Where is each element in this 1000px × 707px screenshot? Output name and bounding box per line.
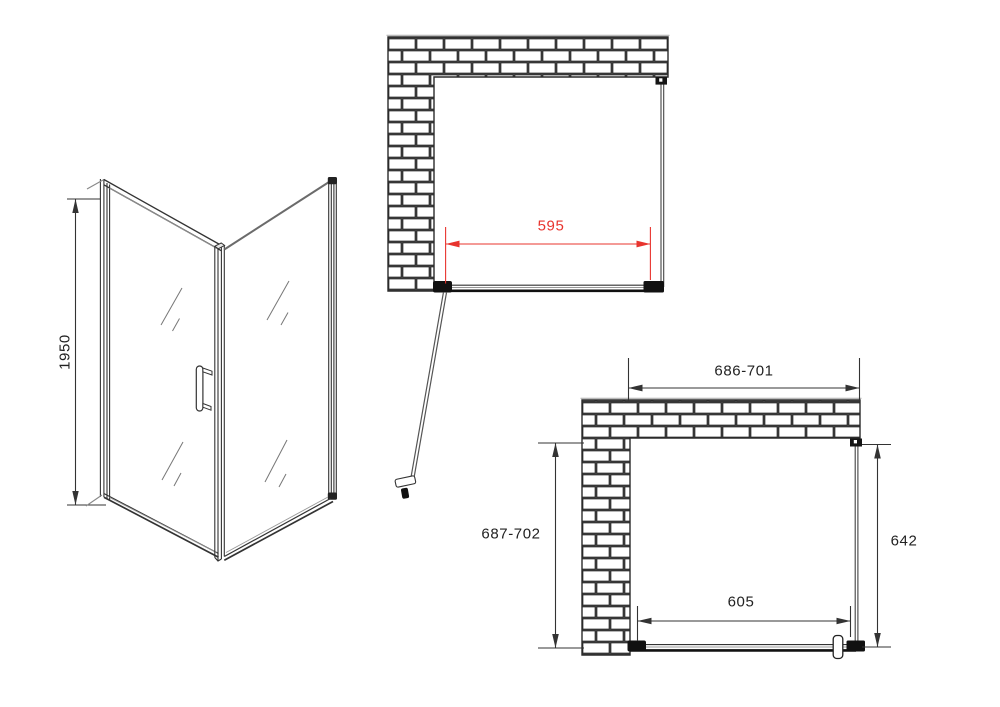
side-panel-bottom-edge	[224, 497, 333, 560]
hinge-bracket	[628, 641, 647, 652]
corner-bracket	[847, 641, 866, 652]
door-closed-rail	[433, 281, 664, 293]
hinge-bracket	[433, 281, 452, 293]
brick-wall	[581, 398, 862, 655]
technical-drawing-page: 1950 595 686-701 687-702 642 605	[0, 0, 1000, 707]
technical-drawing	[0, 0, 1000, 707]
dimension-overall-depth	[538, 443, 584, 648]
door-handle-plan	[833, 636, 843, 659]
corner-bracket	[644, 281, 665, 293]
dimension-door-width	[446, 227, 651, 284]
side-glass-panel	[850, 439, 862, 643]
corner-post	[215, 243, 225, 561]
glass-shine-marks	[161, 281, 289, 487]
wall-profile-right	[328, 177, 337, 500]
door-top-rail	[104, 180, 222, 251]
brick-wall	[387, 35, 670, 291]
perspective-view	[67, 177, 337, 561]
door-closed-rail	[628, 636, 866, 659]
side-panel-top-edge	[224, 182, 329, 250]
dimension-side-panel	[862, 445, 891, 648]
door-handle	[196, 366, 212, 411]
dimension-door-opening	[638, 606, 851, 641]
open-door-handle	[395, 476, 416, 488]
side-glass-panel	[656, 77, 668, 287]
plan-view-lower	[538, 358, 891, 659]
wall-profile-left	[86, 179, 110, 506]
door-bottom-edge	[104, 494, 219, 558]
dimension-overall-width	[629, 358, 860, 401]
door-open-swing	[395, 292, 447, 499]
